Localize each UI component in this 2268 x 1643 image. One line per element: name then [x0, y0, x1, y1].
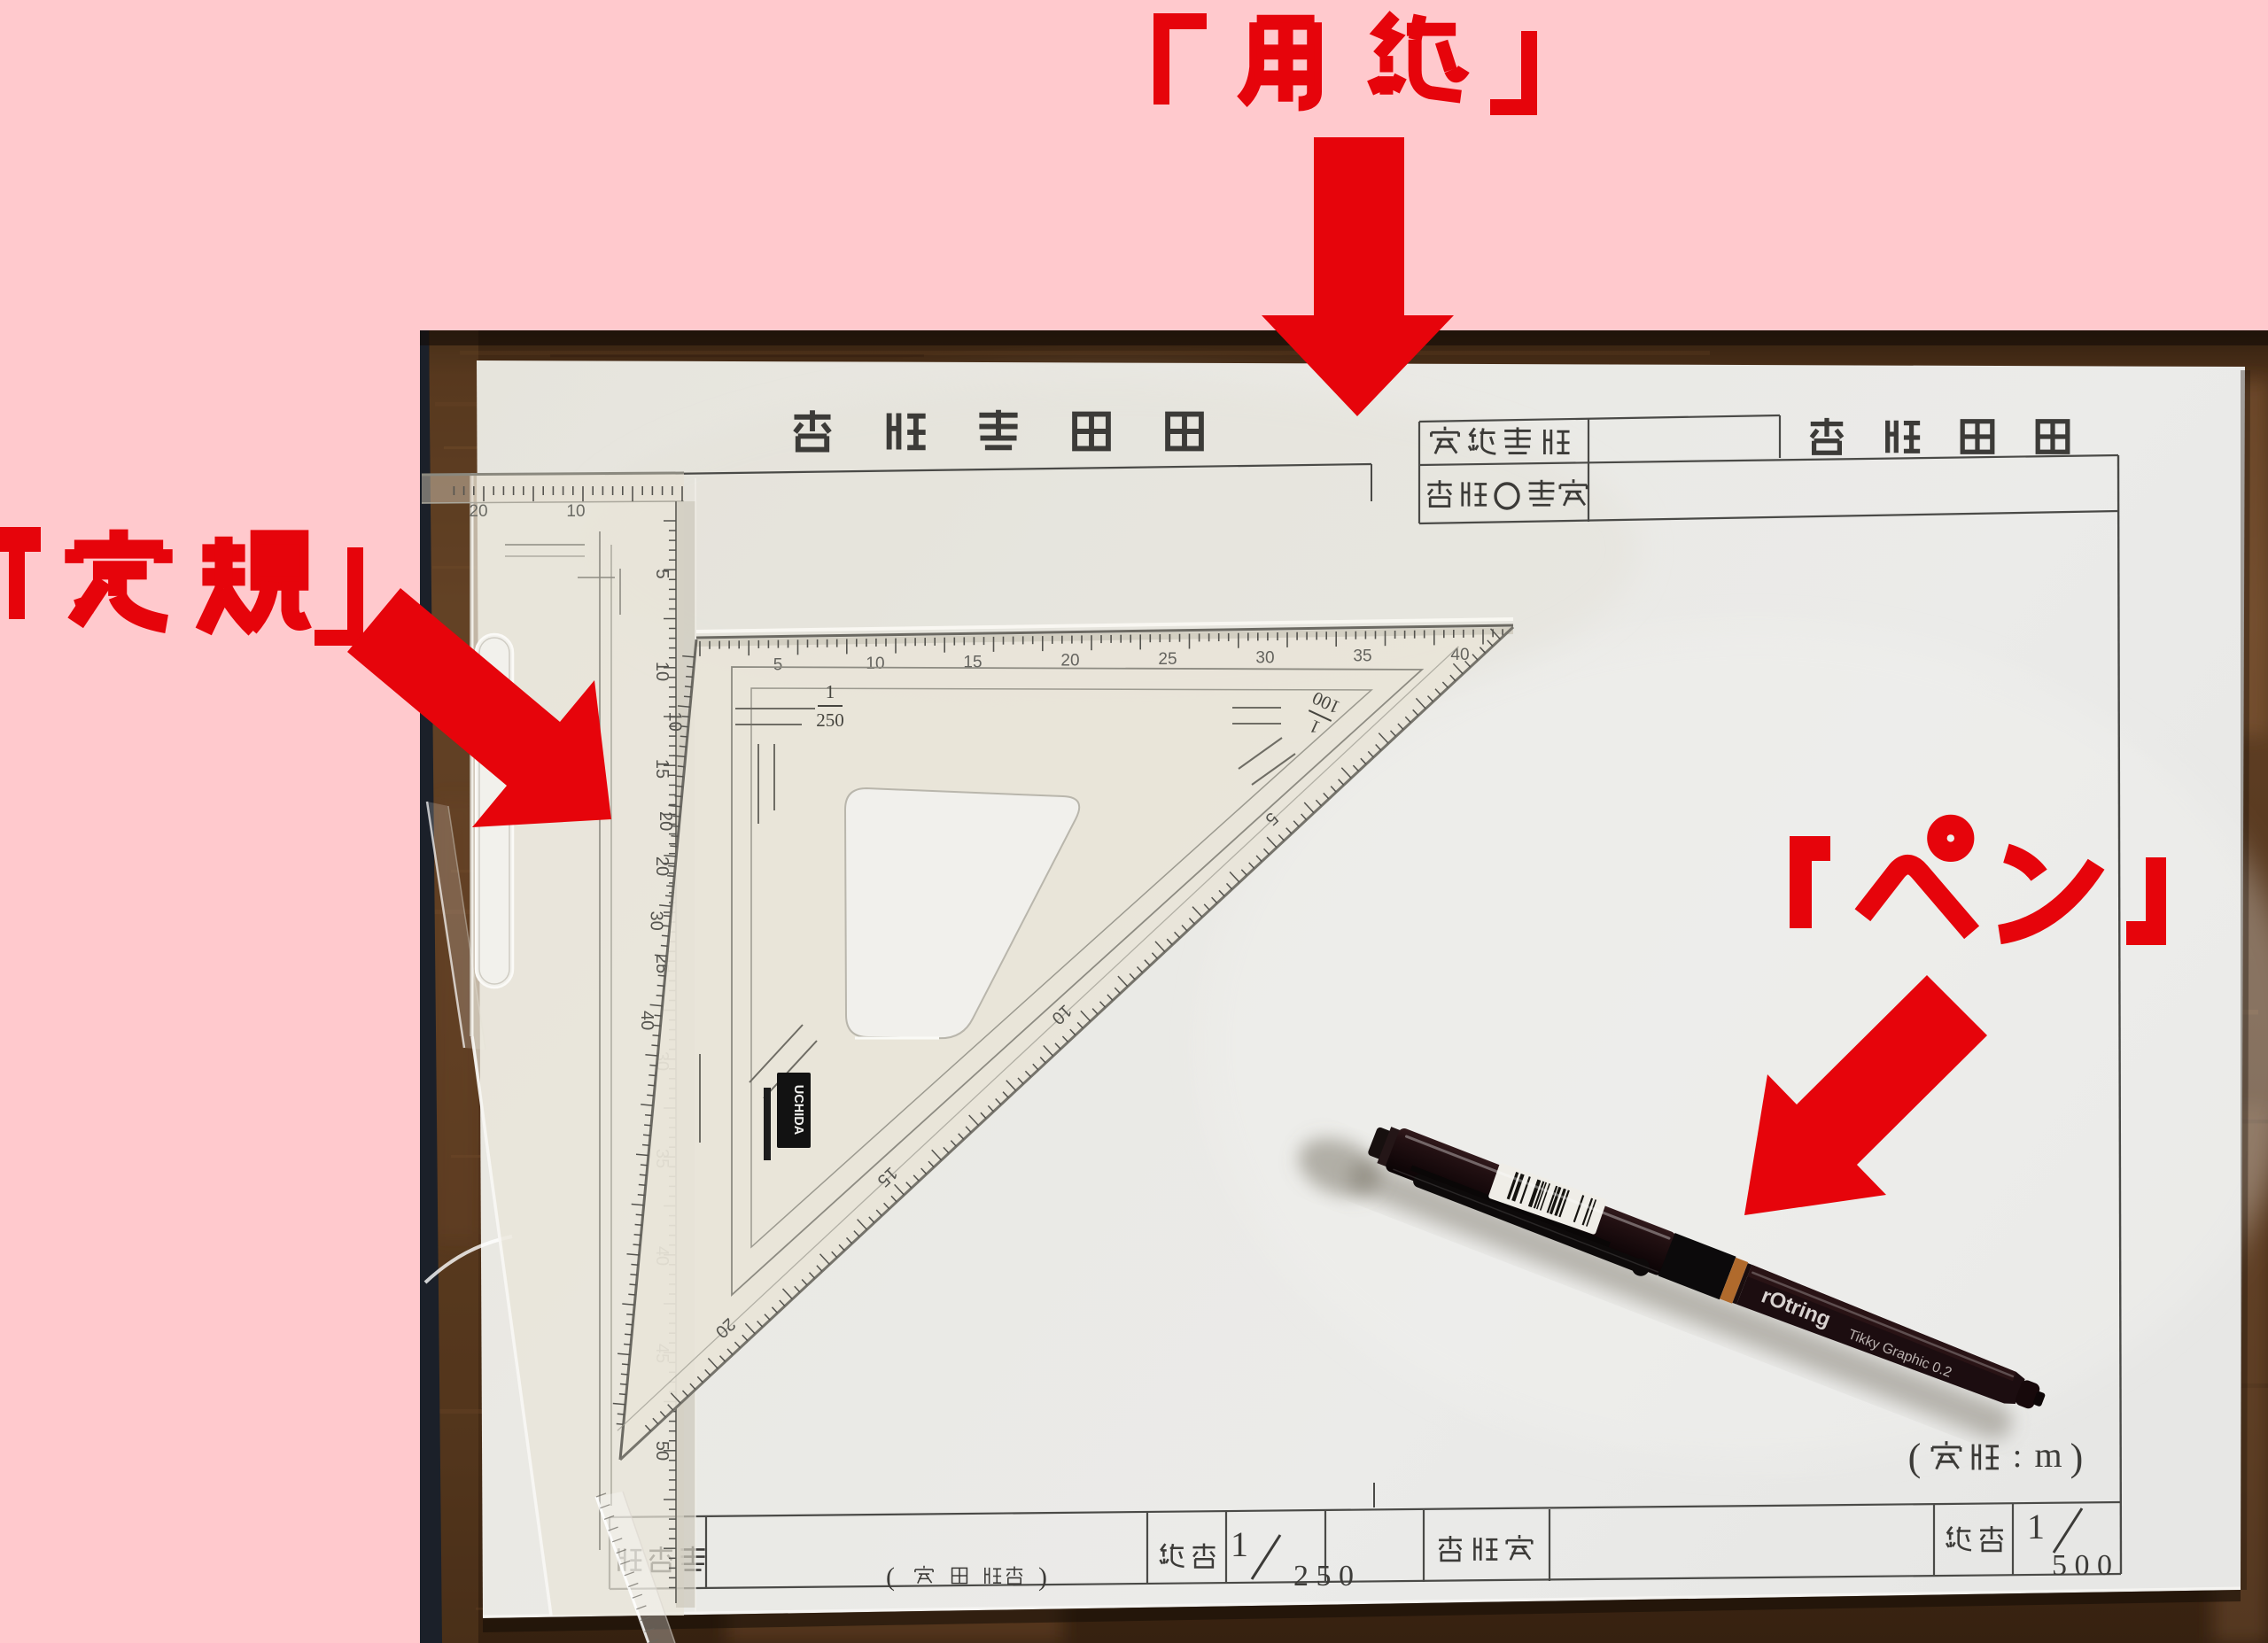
svg-text:5: 5	[773, 656, 783, 675]
svg-text:2 5 0: 2 5 0	[1293, 1560, 1354, 1593]
svg-text:50: 50	[652, 1441, 672, 1461]
svg-text:30: 30	[646, 911, 665, 930]
svg-text::: :	[2013, 1438, 2023, 1475]
svg-text:5 0 0: 5 0 0	[2052, 1549, 2112, 1582]
svg-text:250: 250	[816, 709, 844, 731]
svg-text:35: 35	[1353, 647, 1371, 666]
svg-text:): )	[2070, 1436, 2084, 1479]
svg-text:25: 25	[1158, 650, 1177, 669]
svg-text:10: 10	[566, 502, 585, 521]
svg-text:40: 40	[637, 1011, 656, 1030]
svg-text:15: 15	[963, 653, 982, 671]
svg-text:1: 1	[2027, 1507, 2045, 1546]
svg-text:10: 10	[652, 662, 672, 681]
svg-text:): )	[1038, 1562, 1047, 1592]
svg-text:20: 20	[1060, 652, 1079, 670]
svg-text:1: 1	[1231, 1524, 1248, 1564]
svg-text:(: (	[886, 1562, 895, 1592]
svg-text:20: 20	[656, 811, 675, 831]
svg-text:(: (	[1908, 1436, 1922, 1479]
svg-text:UCHIDA: UCHIDA	[791, 1085, 805, 1135]
svg-text:40: 40	[1450, 646, 1469, 664]
svg-text:20: 20	[469, 502, 487, 521]
svg-text:1: 1	[826, 681, 835, 702]
svg-text:15: 15	[652, 759, 672, 779]
svg-text:10: 10	[866, 655, 884, 673]
svg-text:10: 10	[664, 711, 684, 731]
svg-text:5: 5	[652, 569, 672, 578]
svg-text:m: m	[2034, 1435, 2062, 1475]
svg-text:30: 30	[1255, 648, 1274, 667]
